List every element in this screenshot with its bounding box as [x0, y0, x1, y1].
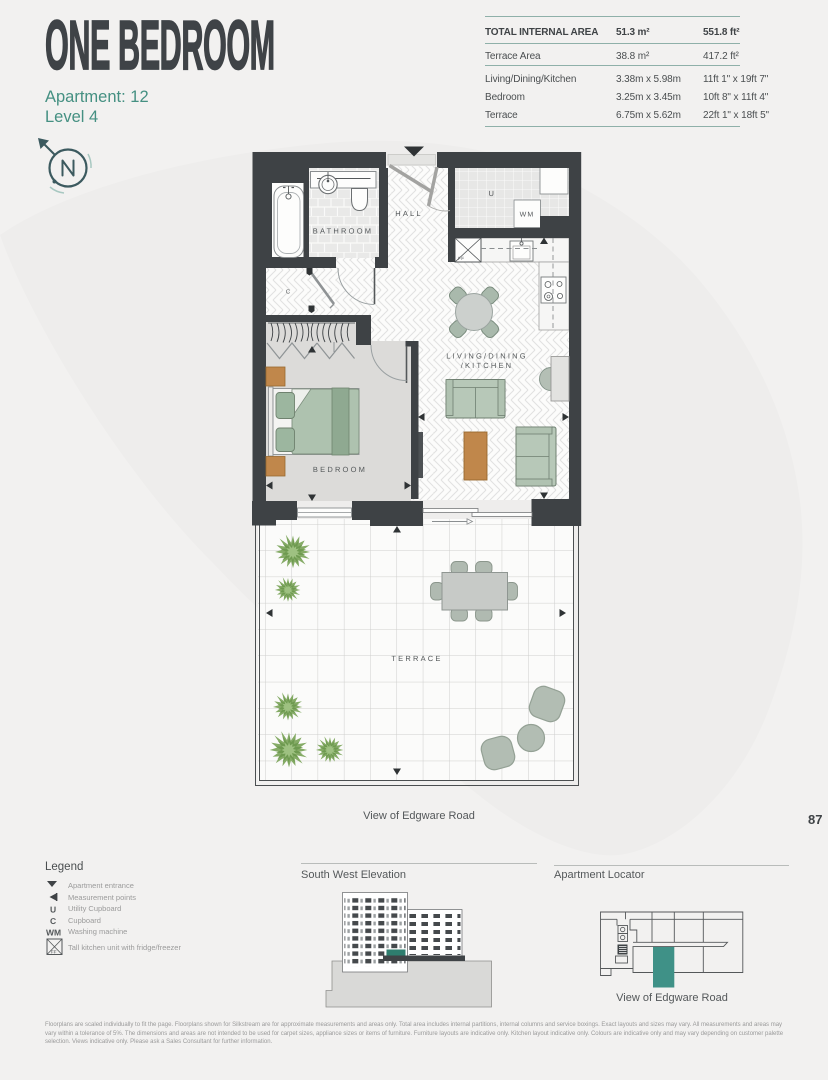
svg-text:TERRACE: TERRACE	[391, 654, 442, 663]
svg-text:C: C	[50, 916, 56, 926]
svg-text:FF: FF	[458, 256, 465, 261]
svg-text:LIVING/DINING: LIVING/DINING	[446, 352, 528, 361]
svg-text:C: C	[286, 289, 291, 296]
svg-text:U: U	[50, 905, 56, 915]
svg-text:U: U	[489, 189, 496, 198]
svg-text:HALL: HALL	[395, 209, 423, 218]
svg-text:FF: FF	[51, 950, 57, 955]
svg-text:BEDROOM: BEDROOM	[313, 465, 367, 474]
svg-text:BATHROOM: BATHROOM	[313, 227, 373, 236]
svg-text:/KITCHEN: /KITCHEN	[461, 361, 514, 370]
svg-text:WM: WM	[520, 212, 535, 219]
svg-text:WM: WM	[46, 928, 61, 938]
